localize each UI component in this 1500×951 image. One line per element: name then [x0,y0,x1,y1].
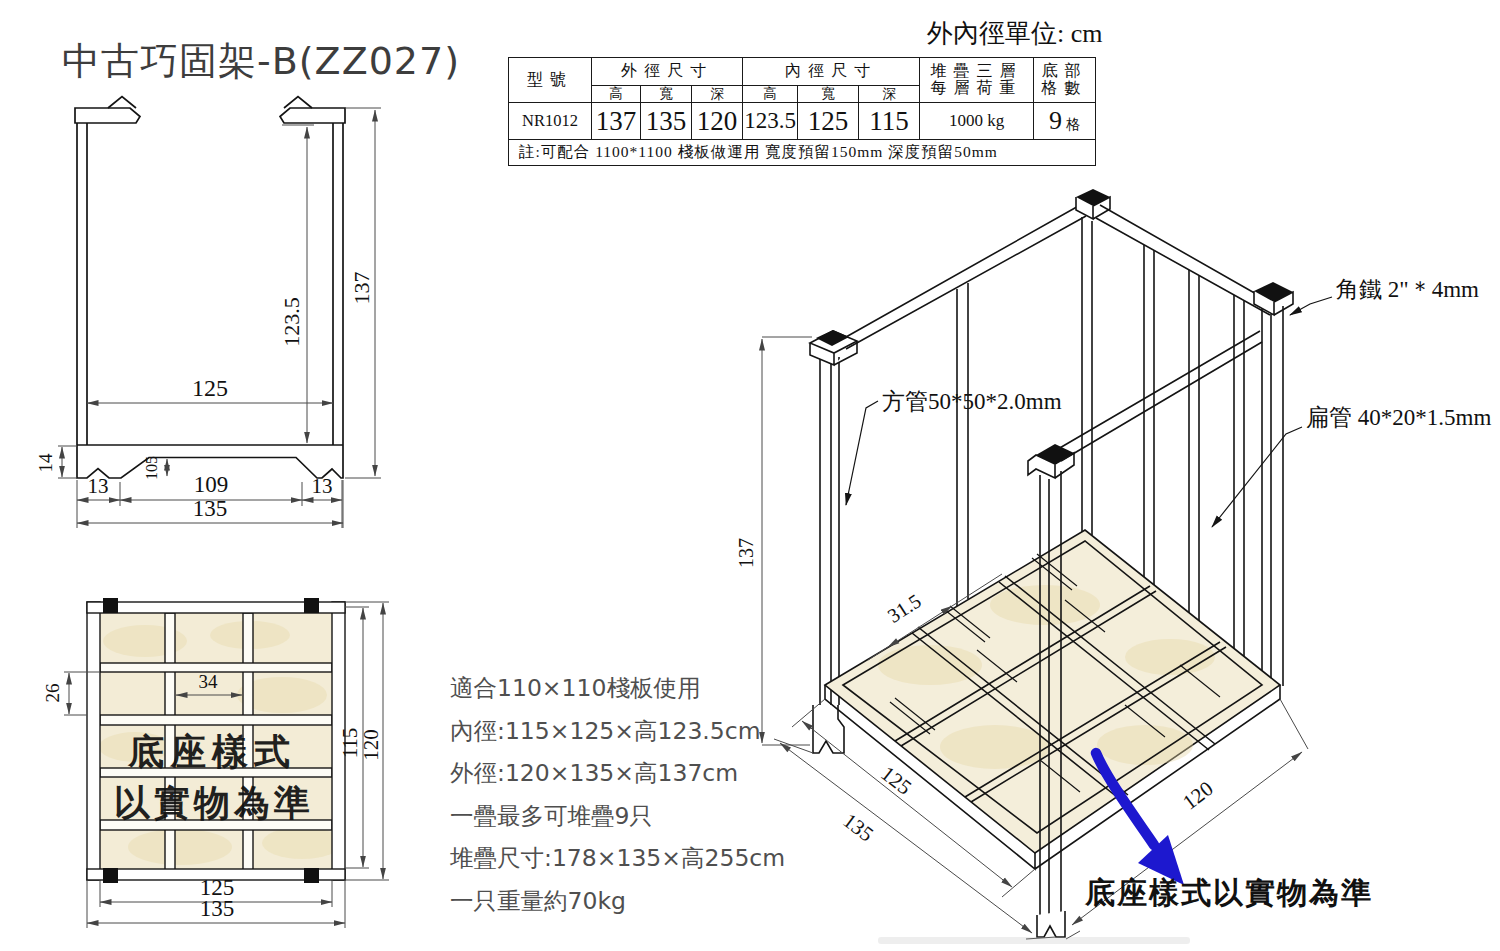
iso-leader-labels: 方管50*50*2.0mm 角鐵 2"＊4mm 扁管 40*20*1.5mm [882,277,1491,430]
spec-line-outer: 外徑:120×135×高137cm [450,752,785,795]
spec-line-stack-count: 一疊最多可堆疊9只 [450,795,785,838]
spec-line-inner: 內徑:115×125×高123.5cm [450,710,785,753]
header-outer-d: 深 [692,86,743,103]
dim-opening-height: 105 [143,456,160,480]
label-angle-iron: 角鐵 2"＊4mm [1336,277,1479,302]
cell-outer-d: 120 [692,103,743,140]
header-load: 堆疊三層 每層荷重 [920,58,1034,103]
dim-total-width: 135 [193,496,228,521]
header-outer-w: 寬 [641,86,692,103]
overlay-line1: 底座樣式 [127,731,296,772]
iso-base [825,530,1280,869]
cell-outer-h: 137 [592,103,641,140]
back-slat [957,283,968,606]
front-view-drawing: 123.5 137 125 14 105 13 109 13 135 [20,80,420,550]
header-outer-group: 外徑尺寸 [592,58,743,86]
front-view-dim-labels: 123.5 137 125 14 105 13 109 13 135 [35,272,374,522]
dim-foot-left: 13 [88,474,109,498]
header-model: 型號 [509,58,592,103]
dim-foot-right: 13 [312,474,333,498]
cell-inner-w: 125 [798,103,859,140]
header-outer-h: 高 [592,86,641,103]
table-note: 註:可配合 1100*1100 棧板做運用 寬度預留150mm 深度預留50mm [509,140,1096,166]
dim-iso-depth: 120 [1178,776,1218,814]
base-style-note: 底座樣式以實物為準 [1084,875,1373,910]
spec-table: 型號 外徑尺寸 內徑尺寸 堆疊三層 每層荷重 底部格數 高 寬 深 高 寬 深 … [508,57,1096,166]
drawing-sheet: 中古巧固架-B(ZZ027) 外內徑單位: cm 型號 外徑尺寸 內徑尺寸 堆疊… [0,0,1500,951]
cell-outer-w: 135 [641,103,692,140]
dim-notch: 26 [42,684,63,703]
front-view-structure [75,97,345,479]
cropped-text-artifact [878,937,1190,944]
top-view-drawing: 26 34 115 120 125 135 底座樣式 以實物為準 [20,575,420,940]
spec-line-pallet: 適合110×110棧板使用 [450,667,785,710]
cell-load: 1000 kg [920,103,1034,140]
cell-model: NR1012 [509,103,592,140]
header-inner-group: 內徑尺寸 [743,58,920,86]
header-inner-h: 高 [743,86,798,103]
dim-span: 109 [194,472,229,497]
dim-outer-height: 137 [349,272,374,305]
cell-grid-count: 9格 [1034,103,1096,140]
overlay-line2: 以實物為準 [114,782,314,823]
label-flat-tube: 扁管 40*20*1.5mm [1306,405,1491,430]
dim-base-height: 14 [35,453,56,473]
dim-slot: 34 [199,671,219,692]
spec-line-weight: 一只重量約70kg [450,880,785,923]
header-inner-d: 深 [859,86,920,103]
dim-outer-depth: 120 [359,729,383,761]
unit-note: 外內徑單位: cm [927,16,1103,51]
dim-inner-width: 125 [192,375,228,401]
dim-slat-spacing: 31.5 [884,589,925,627]
dim-outer-width: 135 [200,896,235,921]
dim-iso-outer-width: 135 [838,808,878,846]
header-inner-w: 寬 [798,86,859,103]
isometric-drawing: 137 31.5 125 135 120 方管50*50*2.0mm 角鐵 2"… [740,185,1500,951]
header-cells: 底部格數 [1034,58,1096,103]
dim-iso-height: 137 [735,538,757,568]
spec-line-stack-size: 堆疊尺寸:178×135×高255cm [450,837,785,880]
dim-inner-height: 123.5 [279,297,304,347]
specs-list: 適合110×110棧板使用 內徑:115×125×高123.5cm 外徑:120… [450,667,785,922]
cell-inner-d: 115 [859,103,920,140]
cell-inner-h: 123.5 [743,103,798,140]
label-square-tube: 方管50*50*2.0mm [882,389,1062,414]
